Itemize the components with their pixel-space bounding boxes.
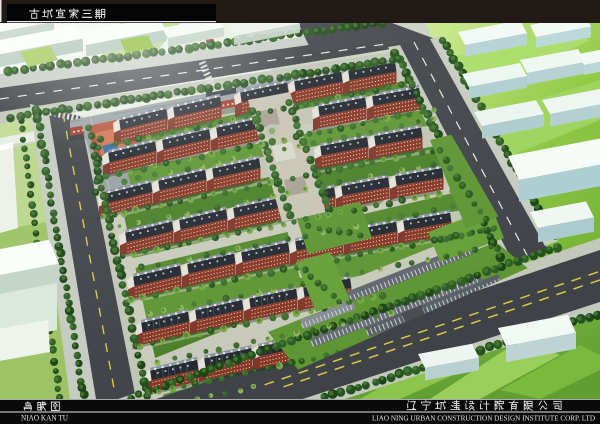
svg-text:LIAO NING URBAN CONSTRUCTION D: LIAO NING URBAN CONSTRUCTION DESIGN INST… <box>372 414 595 423</box>
svg-text:NIAO KAN TU: NIAO KAN TU <box>21 414 68 423</box>
